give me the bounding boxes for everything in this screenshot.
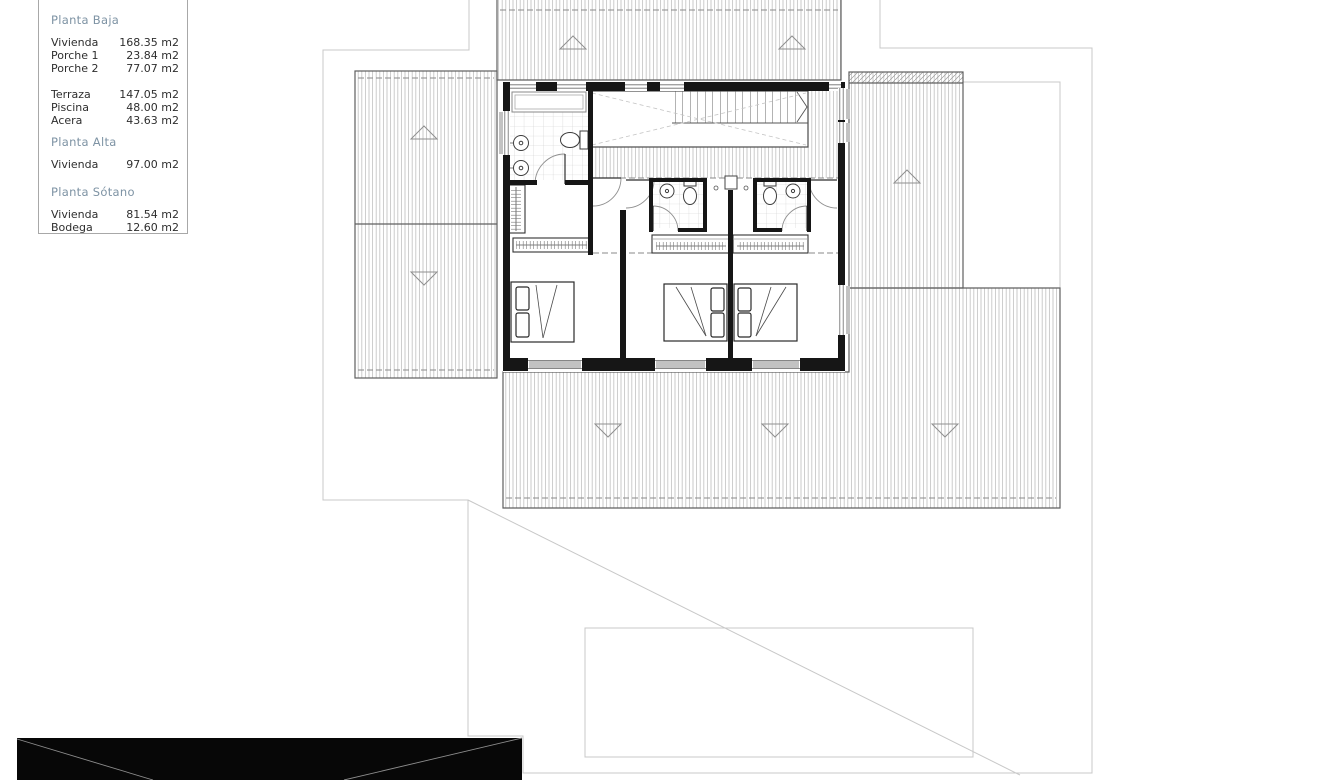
- corridor-void-hatch: [593, 147, 838, 178]
- legend-label: Vivienda: [51, 158, 98, 171]
- legend-value: 12.60 m2: [126, 221, 179, 234]
- toilet-icon: [580, 131, 588, 149]
- roof-right-wing: [849, 72, 963, 288]
- legend-row: Terraza 147.05 m2: [51, 88, 179, 101]
- legend-label: Bodega: [51, 221, 93, 234]
- legend-row: Piscina 48.00 m2: [51, 101, 179, 114]
- stair-side-hatch: [810, 91, 838, 147]
- legend-row: Porche 2 77.07 m2: [51, 62, 179, 75]
- legend-label: Porche 2: [51, 62, 99, 75]
- bathroom-right: [757, 181, 807, 231]
- legend-label: Acera: [51, 114, 82, 127]
- legend-row: Bodega 12.60 m2: [51, 221, 179, 234]
- legend-value: 168.35 m2: [119, 36, 179, 49]
- staircase: [590, 91, 808, 147]
- legend-section-title: Planta Sótano: [51, 185, 187, 199]
- legend-section-title: Planta Alta: [51, 135, 187, 149]
- bed: [734, 284, 797, 341]
- wardrobe: [652, 235, 730, 253]
- legend-value: 97.00 m2: [126, 158, 179, 171]
- floor-plan-drawing: [0, 0, 1324, 780]
- legend-value: 43.63 m2: [126, 114, 179, 127]
- bathroom-left: [653, 181, 703, 231]
- bathroom-main: [510, 92, 588, 184]
- legend-row: Porche 1 23.84 m2: [51, 49, 179, 62]
- legend-value: 147.05 m2: [119, 88, 179, 101]
- legend-row: Vivienda 168.35 m2: [51, 36, 179, 49]
- floor-plan-sheet: Planta Baja Vivienda 168.35 m2 Porche 1 …: [0, 0, 1324, 780]
- legend-row: Vivienda 81.54 m2: [51, 208, 179, 221]
- plot-diagonal-line: [468, 500, 1020, 775]
- building-plan: [499, 82, 850, 372]
- legend-label: Terraza: [51, 88, 91, 101]
- pool-outline: [585, 628, 973, 757]
- legend-row: Vivienda 97.00 m2: [51, 158, 179, 171]
- roof-top: [497, 0, 841, 80]
- legend-value: 48.00 m2: [126, 101, 179, 114]
- area-legend: Planta Baja Vivienda 168.35 m2 Porche 1 …: [38, 0, 188, 234]
- legend-row: Acera 43.63 m2: [51, 114, 179, 127]
- legend-label: Vivienda: [51, 208, 98, 221]
- legend-section-title: Planta Baja: [51, 13, 187, 27]
- wardrobe: [733, 235, 808, 253]
- bed: [664, 284, 727, 341]
- bed: [511, 282, 574, 342]
- legend-value: 23.84 m2: [126, 49, 179, 62]
- legend-label: Piscina: [51, 101, 89, 114]
- legend-label: Vivienda: [51, 36, 98, 49]
- roof-left-wing: [355, 71, 497, 378]
- legend-value: 81.54 m2: [126, 208, 179, 221]
- legend-label: Porche 1: [51, 49, 99, 62]
- terrace-outline: [963, 82, 1060, 288]
- title-photo-block: [17, 738, 522, 780]
- legend-value: 77.07 m2: [126, 62, 179, 75]
